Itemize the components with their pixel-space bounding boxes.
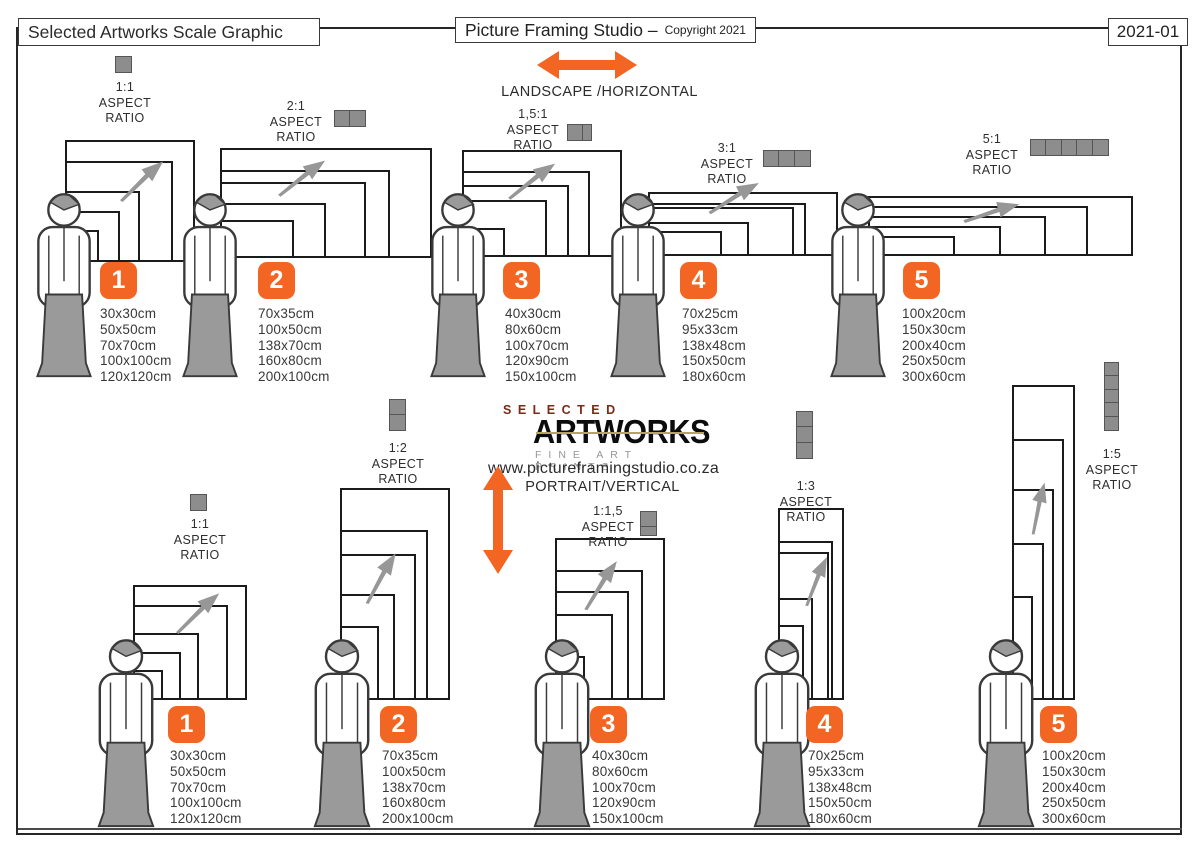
ratio-word: RATIO (169, 548, 231, 564)
size-item: 138x70cm (382, 780, 454, 796)
ratio-word: RATIO (959, 163, 1025, 179)
ratio-icon-1-1-5 (640, 511, 657, 536)
size-item: 100x50cm (258, 322, 330, 338)
size-item: 150x100cm (592, 811, 664, 827)
size-item: 80x60cm (592, 764, 664, 780)
human-figure (26, 190, 102, 380)
aspect-label-portrait-4: 1:3 ASPECT RATIO (773, 479, 839, 526)
size-item: 180x60cm (808, 811, 872, 827)
aspect-word: ASPECT (366, 457, 430, 473)
size-item: 40x30cm (505, 306, 577, 322)
size-item: 200x100cm (382, 811, 454, 827)
horizontal-double-arrow-icon (537, 51, 637, 79)
size-item: 100x100cm (170, 795, 242, 811)
aspect-label-portrait-1: 1:1 ASPECT RATIO (169, 517, 231, 564)
ratio-word: RATIO (773, 510, 839, 526)
size-item: 120x120cm (100, 369, 172, 385)
group-number-badge: 3 (503, 262, 540, 299)
size-item: 95x33cm (808, 764, 872, 780)
ratio-word: RATIO (575, 535, 641, 551)
vertical-double-arrow-icon (483, 466, 513, 574)
ratio-icon-3-1 (763, 150, 811, 167)
size-item: 300x60cm (902, 369, 966, 385)
icon-cell (389, 414, 406, 431)
ratio-word: RATIO (366, 472, 430, 488)
poster-page: Selected Artworks Scale Graphic Picture … (0, 0, 1200, 842)
size-item: 120x90cm (505, 353, 577, 369)
doc-number-box: 2021-01 (1108, 18, 1188, 46)
icon-cell (796, 442, 813, 459)
logo-strike-line (536, 432, 704, 434)
aspect-word: ASPECT (773, 495, 839, 511)
ratio-word: RATIO (1079, 478, 1145, 494)
ratio-value: 5:1 (959, 132, 1025, 148)
studio-title-text: Picture Framing Studio – (465, 20, 658, 41)
size-item: 40x30cm (592, 748, 664, 764)
ratio-word: RATIO (694, 172, 760, 188)
group-number-badge: 3 (590, 706, 627, 743)
icon-cell (1092, 139, 1109, 156)
icon-cell (349, 110, 366, 127)
ratio-icon-1-2 (389, 399, 406, 431)
size-item: 100x70cm (592, 780, 664, 796)
ratio-value: 1:2 (366, 441, 430, 457)
size-list-portrait-5: 100x20cm 150x30cm 200x40cm 250x50cm 300x… (1042, 748, 1106, 827)
size-item: 200x100cm (258, 369, 330, 385)
ratio-value: 1:1 (169, 517, 231, 533)
size-item: 120x90cm (592, 795, 664, 811)
size-item: 70x70cm (100, 338, 172, 354)
icon-cell (582, 124, 592, 141)
ratio-value: 1:5 (1079, 447, 1145, 463)
size-list-landscape-3: 40x30cm 80x60cm 100x70cm 120x90cm 150x10… (505, 306, 577, 385)
size-item: 200x40cm (1042, 780, 1106, 796)
size-list-portrait-2: 70x35cm 100x50cm 138x70cm 160x80cm 200x1… (382, 748, 454, 827)
size-item: 70x25cm (682, 306, 746, 322)
size-item: 138x48cm (682, 338, 746, 354)
ratio-value: 1:3 (773, 479, 839, 495)
group-number-badge: 2 (380, 706, 417, 743)
size-item: 138x70cm (258, 338, 330, 354)
studio-title: Picture Framing Studio – Copyright 2021 (455, 17, 756, 43)
human-figure (820, 190, 896, 380)
size-item: 200x40cm (902, 338, 966, 354)
aspect-word: ASPECT (264, 115, 328, 131)
size-item: 160x80cm (258, 353, 330, 369)
aspect-label-landscape-2: 2:1 ASPECT RATIO (264, 99, 328, 146)
ratio-icon-1-5-1 (567, 124, 592, 141)
ratio-icon-1-3 (796, 411, 813, 459)
group-number-badge: 1 (100, 262, 137, 299)
size-item: 138x48cm (808, 780, 872, 796)
size-list-landscape-5: 100x20cm 150x30cm 200x40cm 250x50cm 300x… (902, 306, 966, 385)
ratio-word: RATIO (94, 111, 156, 127)
size-list-portrait-4: 70x25cm 95x33cm 138x48cm 150x50cm 180x60… (808, 748, 872, 827)
aspect-word: ASPECT (94, 96, 156, 112)
ratio-value: 3:1 (694, 141, 760, 157)
group-number-badge: 4 (806, 706, 843, 743)
aspect-label-landscape-5: 5:1 ASPECT RATIO (959, 132, 1025, 179)
aspect-word: ASPECT (575, 520, 641, 536)
size-item: 300x60cm (1042, 811, 1106, 827)
size-item: 250x50cm (902, 353, 966, 369)
size-item: 100x20cm (1042, 748, 1106, 764)
size-item: 100x50cm (382, 764, 454, 780)
aspect-label-landscape-4: 3:1 ASPECT RATIO (694, 141, 760, 188)
ratio-value: 1:1,5 (575, 504, 641, 520)
size-item: 120x120cm (170, 811, 242, 827)
size-item: 160x80cm (382, 795, 454, 811)
page-title: Selected Artworks Scale Graphic (18, 18, 320, 46)
ratio-icon-1-1-p (190, 494, 207, 511)
human-figure (80, 636, 172, 830)
aspect-label-portrait-5: 1:5 ASPECT RATIO (1079, 447, 1145, 494)
size-item: 70x35cm (382, 748, 454, 764)
ratio-word: RATIO (500, 138, 566, 154)
size-item: 180x60cm (682, 369, 746, 385)
human-figure (296, 636, 388, 830)
human-figure (960, 636, 1052, 830)
group-number-badge: 5 (903, 262, 940, 299)
aspect-word: ASPECT (1079, 463, 1145, 479)
size-item: 250x50cm (1042, 795, 1106, 811)
size-item: 150x100cm (505, 369, 577, 385)
size-item: 50x50cm (170, 764, 242, 780)
size-item: 70x70cm (170, 780, 242, 796)
aspect-label-landscape-1: 1:1 ASPECT RATIO (94, 80, 156, 127)
size-item: 70x25cm (808, 748, 872, 764)
size-item: 95x33cm (682, 322, 746, 338)
size-list-landscape-1: 30x30cm 50x50cm 70x70cm 100x100cm 120x12… (100, 306, 172, 385)
aspect-label-portrait-2: 1:2 ASPECT RATIO (366, 441, 430, 488)
icon-cell (1104, 416, 1119, 431)
portrait-direction-label: PORTRAIT/VERTICAL (480, 479, 725, 495)
aspect-word: ASPECT (694, 157, 760, 173)
size-list-portrait-1: 30x30cm 50x50cm 70x70cm 100x100cm 120x12… (170, 748, 242, 827)
aspect-word: ASPECT (169, 533, 231, 549)
size-item: 100x70cm (505, 338, 577, 354)
doc-number: 2021-01 (1117, 22, 1179, 42)
ratio-value: 1,5:1 (500, 107, 566, 123)
ratio-value: 2:1 (264, 99, 328, 115)
size-item: 50x50cm (100, 322, 172, 338)
ratio-word: RATIO (264, 130, 328, 146)
size-item: 80x60cm (505, 322, 577, 338)
landscape-direction-label: LANDSCAPE /HORIZONTAL (492, 84, 707, 100)
human-figure (420, 190, 496, 380)
size-item: 30x30cm (100, 306, 172, 322)
group-number-badge: 1 (168, 706, 205, 743)
size-item: 150x30cm (902, 322, 966, 338)
size-item: 150x50cm (682, 353, 746, 369)
size-list-landscape-2: 70x35cm 100x50cm 138x70cm 160x80cm 200x1… (258, 306, 330, 385)
ratio-icon-1-5-p (1104, 362, 1119, 431)
size-item: 150x30cm (1042, 764, 1106, 780)
page-title-text: Selected Artworks Scale Graphic (28, 22, 283, 43)
aspect-label-landscape-3: 1,5:1 ASPECT RATIO (500, 107, 566, 154)
size-item: 30x30cm (170, 748, 242, 764)
size-item: 100x100cm (100, 353, 172, 369)
aspect-word: ASPECT (500, 123, 566, 139)
size-item: 70x35cm (258, 306, 330, 322)
size-item: 150x50cm (808, 795, 872, 811)
ratio-icon-1-1 (115, 56, 132, 73)
ratio-icon-2-1 (334, 110, 366, 127)
group-number-badge: 4 (680, 262, 717, 299)
human-figure (172, 190, 248, 380)
icon-cell (190, 494, 207, 511)
ratio-value: 1:1 (94, 80, 156, 96)
icon-cell (794, 150, 811, 167)
group-number-badge: 2 (258, 262, 295, 299)
group-number-badge: 5 (1040, 706, 1077, 743)
aspect-word: ASPECT (959, 148, 1025, 164)
size-item: 100x20cm (902, 306, 966, 322)
size-list-landscape-4: 70x25cm 95x33cm 138x48cm 150x50cm 180x60… (682, 306, 746, 385)
aspect-label-portrait-3: 1:1,5 ASPECT RATIO (575, 504, 641, 551)
icon-cell (640, 526, 657, 536)
icon-cell (115, 56, 132, 73)
human-figure (600, 190, 676, 380)
ratio-icon-5-1 (1030, 139, 1109, 156)
size-list-portrait-3: 40x30cm 80x60cm 100x70cm 120x90cm 150x10… (592, 748, 664, 827)
copyright-text: Copyright 2021 (665, 23, 746, 37)
